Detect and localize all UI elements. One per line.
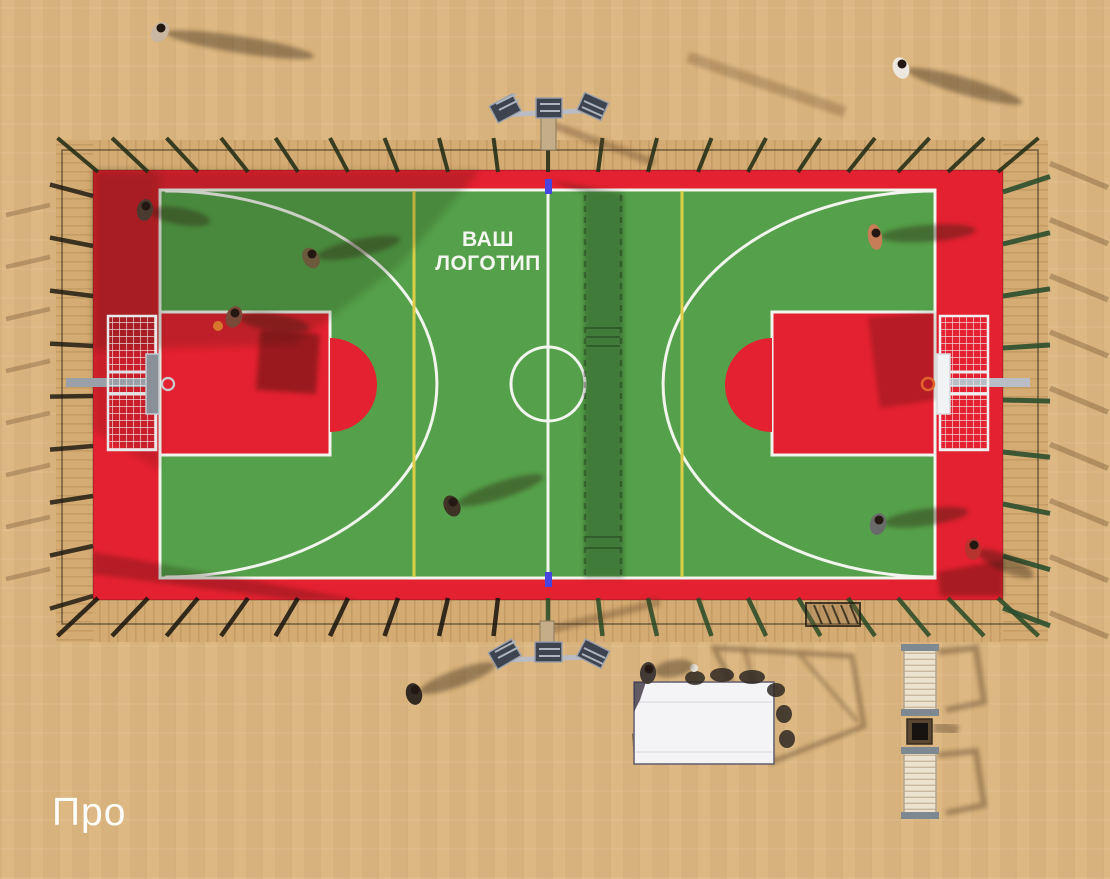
net-post-top xyxy=(545,179,552,194)
basketball xyxy=(213,321,223,331)
court-logo-line2: ЛОГОТИП xyxy=(413,252,563,276)
court-render-scene: ВАШ ЛОГОТИП Про xyxy=(0,0,1110,879)
scene-svg xyxy=(0,0,1110,879)
lamp-shadow-top-right xyxy=(688,57,845,112)
bike-rack xyxy=(806,603,860,626)
court-logo-line1: ВАШ xyxy=(413,228,563,252)
person xyxy=(147,18,315,64)
court-logo-placeholder: ВАШ ЛОГОТИП xyxy=(413,228,563,275)
net-post-bottom xyxy=(545,572,552,587)
caption-text: Про xyxy=(52,791,126,835)
person xyxy=(403,657,497,707)
backboard-left xyxy=(146,354,159,414)
street-furniture xyxy=(901,644,984,819)
trash-bin xyxy=(907,719,932,744)
bench-top xyxy=(901,644,939,716)
bench-bottom xyxy=(901,747,939,819)
person xyxy=(890,55,1025,111)
backboard-right xyxy=(937,354,950,414)
